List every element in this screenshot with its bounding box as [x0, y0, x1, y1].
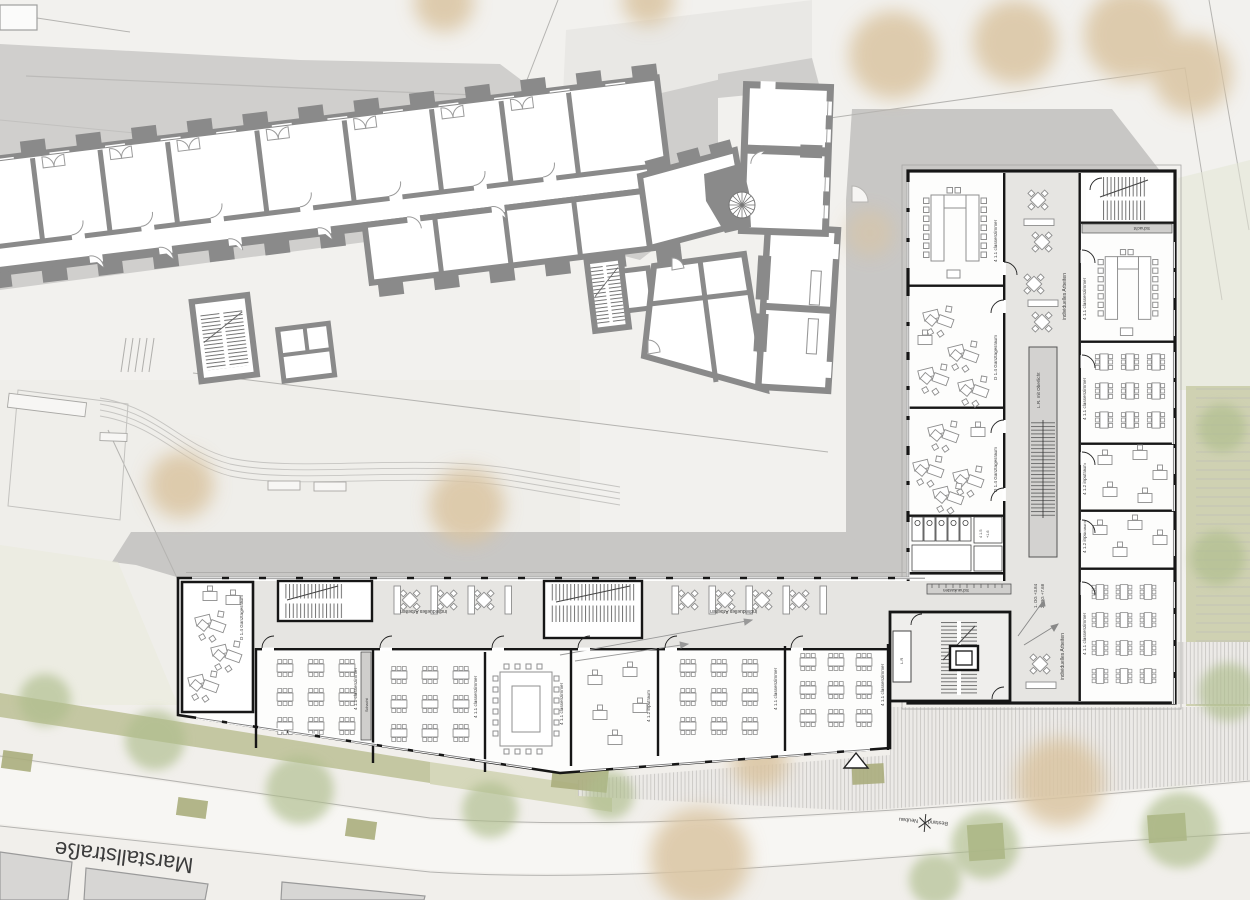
- svg-text:4 1.2 inputraum: 4 1.2 inputraum: [646, 690, 651, 722]
- svg-text:4 1.1 classenzimmer: 4 1.1 classenzimmer: [1082, 612, 1087, 655]
- svg-text:+1.6: +1.6: [986, 531, 990, 539]
- svg-text:individuelles Arbeiten: individuelles Arbeiten: [710, 608, 757, 614]
- svg-text:4 1.1 classenzimmer: 4 1.1 classenzimmer: [1082, 377, 1087, 420]
- svg-text:4 1.1 classenzimmer: 4 1.1 classenzimmer: [880, 663, 885, 706]
- svg-text:4 1.1 classenzimmer: 4 1.1 classenzimmer: [1082, 277, 1087, 320]
- svg-text:4 1.1 classenzimmer: 4 1.1 classenzimmer: [773, 667, 778, 710]
- svg-text:Schacht: Schacht: [365, 697, 369, 712]
- svg-text:1. OG +3.84: 1. OG +3.84: [1033, 583, 1038, 608]
- svg-text:Schaukasten: Schaukasten: [942, 588, 969, 593]
- svg-text:D 1.4 Ganztagesraum: D 1.4 Ganztagesraum: [239, 595, 244, 640]
- svg-text:D 1.4 Ganztagesraum: D 1.4 Ganztagesraum: [993, 447, 998, 492]
- svg-text:4 1.2 inputraum: 4 1.2 inputraum: [1082, 463, 1087, 495]
- svg-text:L.R. mit Oberlicht: L.R. mit Oberlicht: [1036, 372, 1041, 408]
- svg-text:individuelles Arbeiten: individuelles Arbeiten: [400, 608, 447, 614]
- svg-text:D 1.4 Ganztagesraum: D 1.4 Ganztagesraum: [993, 335, 998, 380]
- svg-text:individuelles Arbeiten: individuelles Arbeiten: [1062, 273, 1068, 320]
- svg-text:4 1.5: 4 1.5: [979, 530, 983, 538]
- svg-text:4 1.1 classenzimmer: 4 1.1 classenzimmer: [353, 667, 358, 710]
- svg-text:L.R: L.R: [899, 658, 904, 664]
- svg-text:4 1.1 classenzimmer: 4 1.1 classenzimmer: [559, 682, 564, 725]
- svg-text:4 1.1 classenzimmer: 4 1.1 classenzimmer: [993, 219, 998, 262]
- svg-text:individuelles Arbeiten: individuelles Arbeiten: [1060, 633, 1066, 680]
- svg-text:4 1.1 classenzimmer: 4 1.1 classenzimmer: [473, 675, 478, 718]
- svg-text:Schacht: Schacht: [1133, 226, 1150, 231]
